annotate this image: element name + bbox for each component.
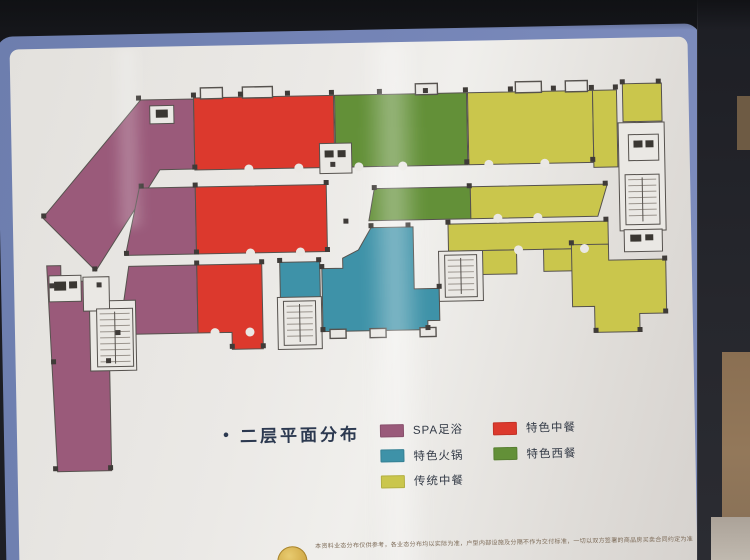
legend-item-hotpot: 特色火锅 [380,447,463,463]
legend-column-2: 特色中餐 特色西餐 [493,420,577,461]
photo-of-floorplan-poster: • 二层平面分布 SPA足浴 特色火锅 传统中餐 [0,0,750,560]
legend-label: 传统中餐 [414,472,464,489]
legend-label: 特色火锅 [413,446,463,463]
legend-label: 特色中餐 [526,419,576,436]
spa-color-swatch [380,424,404,437]
plan-title: 二层平面分布 [240,420,360,447]
western-color-swatch [493,447,517,460]
wall-patch-bottom [711,517,750,560]
legend-label: SPA足浴 [413,421,463,438]
legend-item-spa: SPA足浴 [380,422,463,438]
legend-column-1: SPA足浴 特色火锅 传统中餐 [380,422,464,489]
sichuan-color-swatch [493,421,517,434]
poster-paper: • 二层平面分布 SPA足浴 特色火锅 传统中餐 [10,37,699,560]
legend-item-traditional: 传统中餐 [381,473,464,489]
poster-blue-frame: • 二层平面分布 SPA足浴 特色火锅 传统中餐 [0,23,712,560]
photo-top-shadow [0,0,750,30]
legend-label: 特色西餐 [526,444,576,461]
wall-patch-top [737,96,750,150]
window-frame-right [697,0,750,560]
wall-patch-tan [722,352,750,520]
hotpot-color-swatch [380,449,404,462]
legend-item-sichuan: 特色中餐 [493,420,576,436]
title-bullet-icon: • [223,426,229,443]
traditional-color-swatch [381,475,405,488]
floor-plan-diagram [10,37,699,560]
legend-item-western: 特色西餐 [493,445,576,461]
plan-title-row: • 二层平面分布 [223,420,360,448]
